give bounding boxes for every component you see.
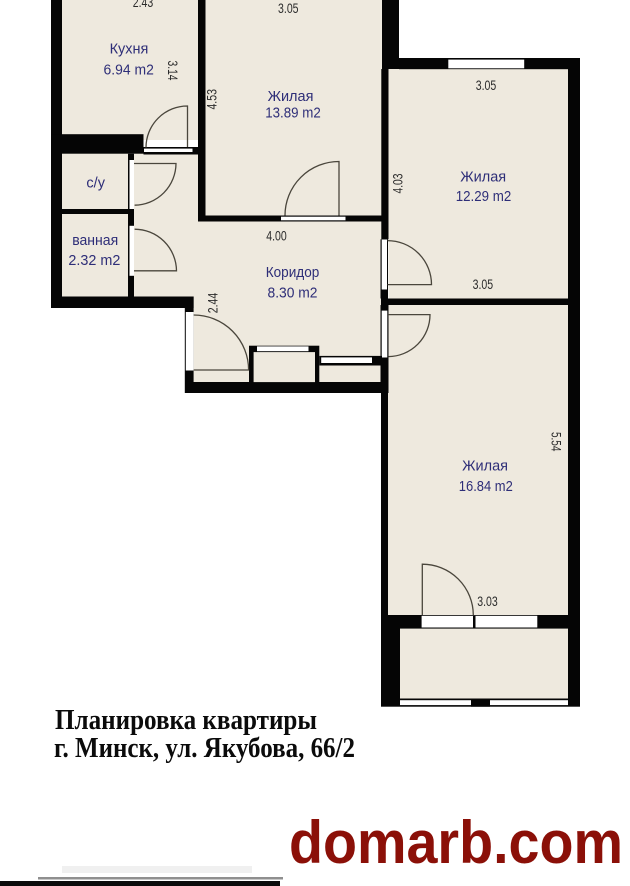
svg-text:3.05: 3.05 — [473, 277, 494, 292]
svg-text:2.43: 2.43 — [133, 0, 154, 10]
svg-text:3.14: 3.14 — [165, 61, 180, 81]
svg-text:4.00: 4.00 — [266, 229, 287, 244]
svg-text:г. Минск, ул. Якубова, 66/2: г. Минск, ул. Якубова, 66/2 — [54, 733, 355, 764]
svg-text:16.84 m2: 16.84 m2 — [459, 479, 513, 495]
svg-text:4.53: 4.53 — [204, 89, 219, 110]
svg-text:2.44: 2.44 — [205, 292, 220, 313]
svg-text:3.05: 3.05 — [278, 1, 299, 16]
svg-text:6.94 m2: 6.94 m2 — [104, 63, 154, 79]
svg-text:3.03: 3.03 — [477, 594, 498, 609]
svg-text:13.89 m2: 13.89 m2 — [265, 105, 321, 121]
svg-text:5.54: 5.54 — [549, 432, 564, 452]
svg-text:Жилая: Жилая — [462, 459, 508, 475]
svg-text:Кухня: Кухня — [110, 42, 149, 58]
svg-text:с/у: с/у — [86, 176, 105, 192]
svg-text:12.29 m2: 12.29 m2 — [456, 189, 512, 205]
svg-text:4.03: 4.03 — [391, 174, 406, 194]
svg-text:Планировка квартиры: Планировка квартиры — [55, 705, 317, 736]
svg-text:domarb.com: domarb.com — [289, 809, 623, 876]
svg-text:Жилая: Жилая — [460, 169, 506, 185]
svg-text:3.05: 3.05 — [476, 78, 497, 93]
svg-text:Коридор: Коридор — [266, 265, 320, 281]
svg-text:Жилая: Жилая — [268, 89, 314, 105]
svg-text:2.32 m2: 2.32 m2 — [68, 253, 120, 269]
svg-text:ванная: ванная — [72, 233, 118, 249]
svg-text:8.30 m2: 8.30 m2 — [268, 286, 318, 302]
